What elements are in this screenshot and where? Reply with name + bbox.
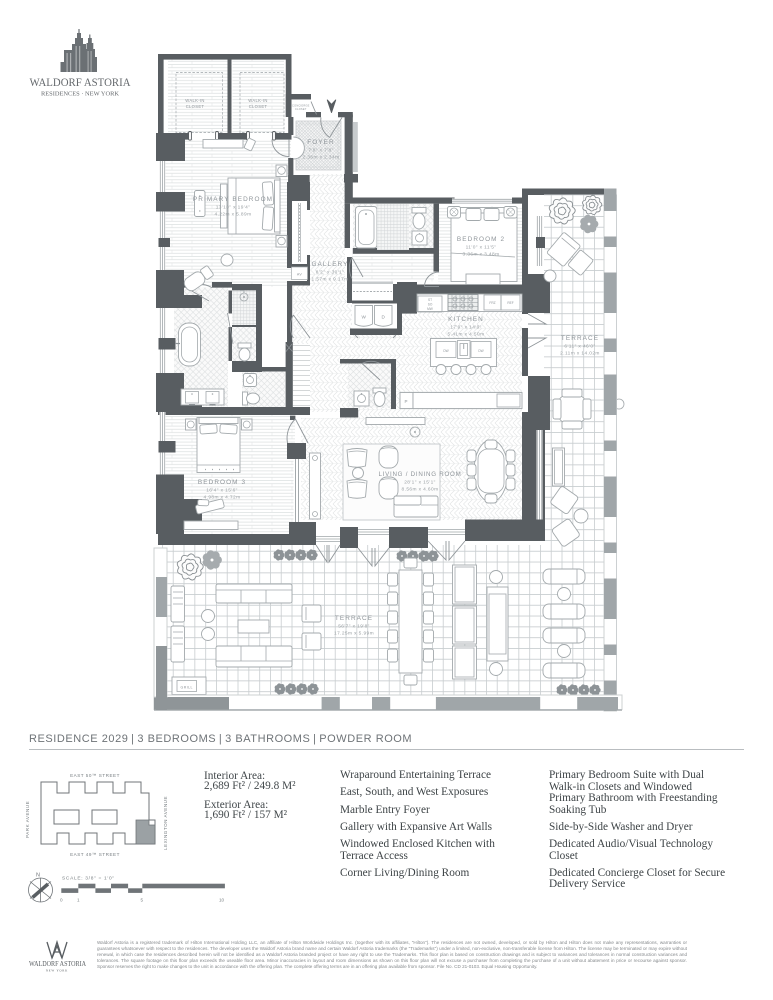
svg-text:SCALE: 3/8" = 1'0": SCALE: 3/8" = 1'0" xyxy=(62,876,115,882)
svg-text:10: 10 xyxy=(219,898,225,903)
svg-text:AV: AV xyxy=(297,273,302,277)
svg-text:BEDROOM 3: BEDROOM 3 xyxy=(198,479,246,486)
svg-text:2.11m x 14.02m: 2.11m x 14.02m xyxy=(560,351,600,357)
svg-text:5: 5 xyxy=(141,898,144,903)
svg-text:PARK AVENUE: PARK AVENUE xyxy=(25,801,30,838)
svg-text:4.98m x 4.72m: 4.98m x 4.72m xyxy=(204,495,241,501)
svg-text:BEDROOM 2: BEDROOM 2 xyxy=(457,236,505,243)
svg-text:REF: REF xyxy=(507,301,513,305)
svg-text:LIVING / DINING ROOM: LIVING / DINING ROOM xyxy=(378,471,461,478)
svg-text:DW: DW xyxy=(443,349,448,353)
svg-text:GALLERY: GALLERY xyxy=(311,261,348,268)
svg-text:CONCIERGE: CONCIERGE xyxy=(292,104,310,108)
svg-text:CLOSET: CLOSET xyxy=(249,104,268,109)
svg-text:1.57m x 9.17m: 1.57m x 9.17m xyxy=(312,277,349,283)
svg-text:RESIDENCES · NEW YORK: RESIDENCES · NEW YORK xyxy=(41,90,119,97)
svg-text:8.56m x 4.60m: 8.56m x 4.60m xyxy=(402,487,439,493)
svg-text:FRZ: FRZ xyxy=(489,301,495,305)
svg-text:1: 1 xyxy=(77,898,80,903)
svg-text:2.36m x 2.34m: 2.36m x 2.34m xyxy=(303,155,340,161)
svg-text:LEXINGTON AVENUE: LEXINGTON AVENUE xyxy=(163,796,168,850)
svg-text:TERRACE: TERRACE xyxy=(335,615,373,622)
svg-text:16'4" x 15'6": 16'4" x 15'6" xyxy=(206,488,238,494)
svg-text:EAST 50™ STREET: EAST 50™ STREET xyxy=(70,773,120,778)
svg-text:17'9" x 14'9": 17'9" x 14'9" xyxy=(450,325,482,331)
svg-text:5.41m x 4.50m: 5.41m x 4.50m xyxy=(448,332,485,338)
svg-text:8'2" x 30'1": 8'2" x 30'1" xyxy=(316,270,344,276)
svg-text:WALDORF ASTORIA: WALDORF ASTORIA xyxy=(30,77,132,89)
svg-text:GRILL: GRILL xyxy=(181,685,193,689)
svg-text:W: W xyxy=(362,315,367,320)
svg-text:SO: SO xyxy=(428,303,433,307)
svg-text:ST: ST xyxy=(428,298,432,302)
svg-text:28'1" x 15'1": 28'1" x 15'1" xyxy=(404,480,436,486)
svg-text:11'0" x 11'5": 11'0" x 11'5" xyxy=(466,245,497,251)
svg-text:WALK-IN: WALK-IN xyxy=(248,98,267,103)
svg-text:PRIMARY BEDROOM: PRIMARY BEDROOM xyxy=(193,196,273,203)
svg-text:P: P xyxy=(404,399,407,404)
svg-text:WALDORF ASTORIA: WALDORF ASTORIA xyxy=(29,960,86,968)
svg-text:WALK-IN: WALK-IN xyxy=(185,98,204,103)
svg-text:TERRACE: TERRACE xyxy=(561,335,599,342)
svg-text:7'9" x 7'8": 7'9" x 7'8" xyxy=(308,148,333,154)
svg-text:CLOSET: CLOSET xyxy=(186,104,205,109)
svg-text:NEW YORK: NEW YORK xyxy=(46,969,68,973)
svg-text:FOYER: FOYER xyxy=(307,139,335,146)
svg-text:MW: MW xyxy=(427,307,433,311)
svg-text:KITCHEN: KITCHEN xyxy=(448,316,484,323)
svg-text:17.25m x 5.99m: 17.25m x 5.99m xyxy=(334,631,374,637)
svg-text:6'11" x 46'0": 6'11" x 46'0" xyxy=(564,344,595,350)
svg-text:EAST 49™ STREET: EAST 49™ STREET xyxy=(70,852,120,857)
svg-text:4.22m x 5.89m: 4.22m x 5.89m xyxy=(215,212,252,218)
svg-text:3.36m x 3.48m: 3.36m x 3.48m xyxy=(463,252,500,258)
svg-text:13'10" x 19'4": 13'10" x 19'4" xyxy=(216,205,251,211)
svg-text:0: 0 xyxy=(60,898,63,903)
svg-text:CLOSET: CLOSET xyxy=(295,107,307,111)
svg-text:DW: DW xyxy=(478,349,483,353)
svg-text:56'7" x 19'8": 56'7" x 19'8" xyxy=(338,624,370,630)
svg-text:N: N xyxy=(36,873,40,879)
